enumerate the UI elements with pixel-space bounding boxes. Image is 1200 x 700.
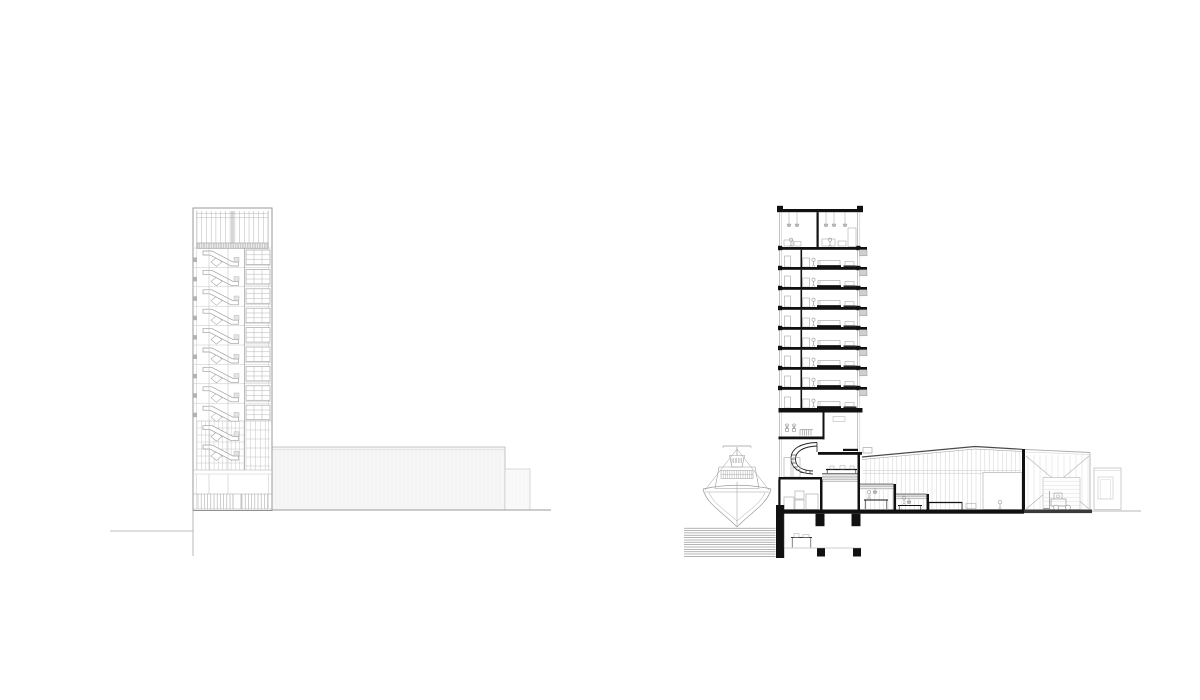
shed-elevation	[272, 447, 551, 510]
foundation-and-quay	[776, 505, 1092, 558]
tower-elevation	[193, 208, 272, 511]
elevation-ground-line	[110, 511, 193, 557]
drawing-sheet	[0, 0, 1200, 700]
water-hatching	[684, 528, 776, 556]
architectural-drawing-canvas	[0, 0, 1200, 700]
elevation-drawing	[110, 208, 551, 556]
boat-sketch	[703, 446, 771, 527]
tower-section	[777, 206, 929, 512]
section-drawing	[684, 206, 1141, 558]
